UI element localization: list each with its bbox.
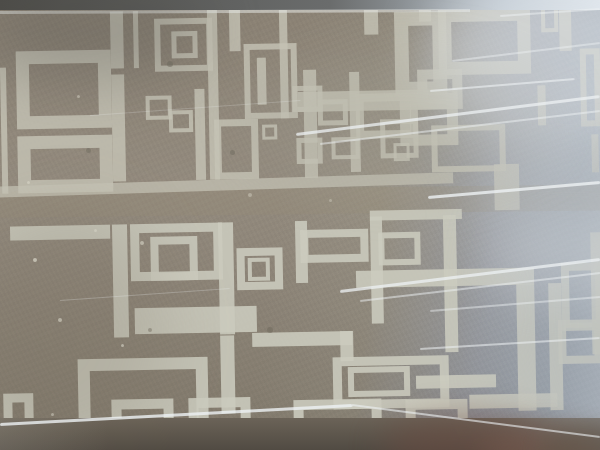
speckle <box>140 241 144 245</box>
speckle <box>33 258 37 262</box>
speckle <box>329 199 332 202</box>
speckle <box>267 327 273 333</box>
speckle <box>27 181 30 184</box>
etched-frame <box>248 258 270 281</box>
speckle <box>167 61 173 67</box>
speckle <box>121 344 124 347</box>
etched-frame <box>150 236 198 281</box>
photo-etched-metal-sheet <box>0 0 600 450</box>
etched-frame <box>348 366 411 397</box>
speckle <box>230 150 235 155</box>
speckle <box>148 328 152 332</box>
speckle <box>94 229 97 232</box>
speckle <box>51 413 54 416</box>
speckle <box>248 193 252 197</box>
etched-frame <box>378 232 421 266</box>
etched-frame <box>300 229 369 263</box>
speckle <box>58 318 62 322</box>
etched-bar <box>252 331 352 347</box>
speckle <box>86 148 91 153</box>
speckle <box>77 95 80 98</box>
